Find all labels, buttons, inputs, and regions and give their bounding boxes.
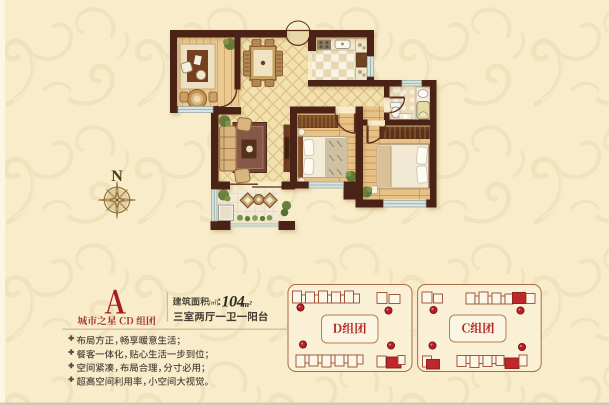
- svg-text:N: N: [111, 168, 123, 185]
- svg-text:104: 104: [222, 294, 245, 311]
- svg-text:m²: m²: [243, 299, 253, 309]
